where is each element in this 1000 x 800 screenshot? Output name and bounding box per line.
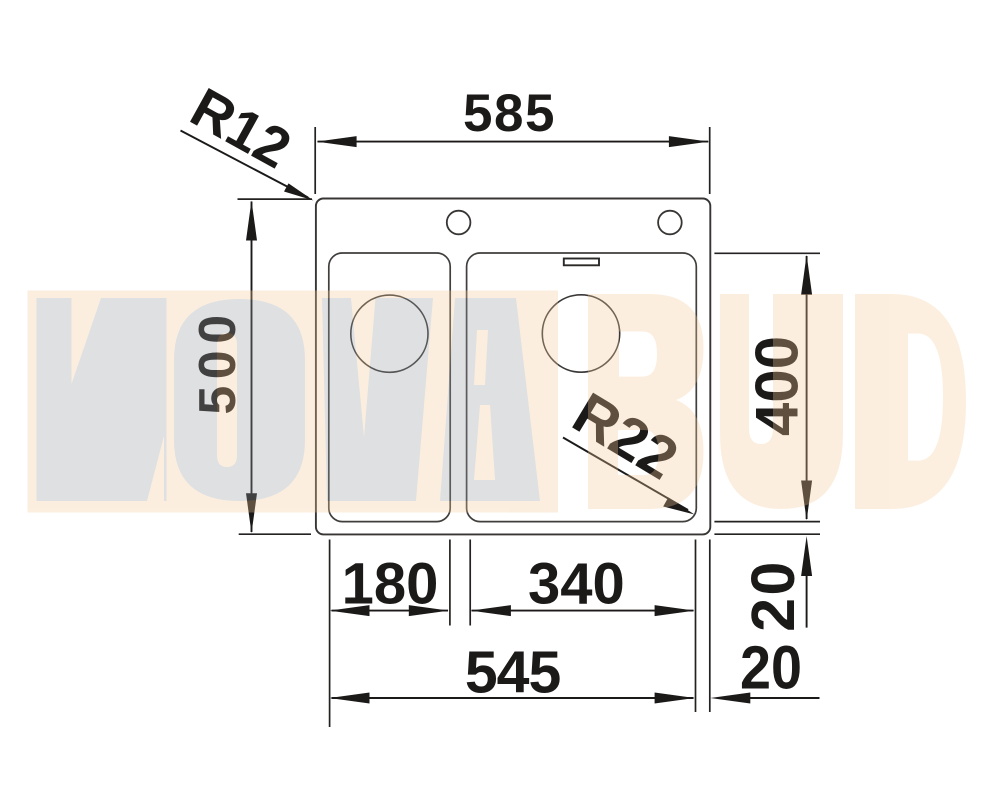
svg-text:20: 20: [739, 559, 807, 632]
svg-text:545: 545: [465, 640, 561, 706]
svg-text:340: 340: [528, 552, 625, 617]
svg-text:20: 20: [740, 634, 802, 702]
svg-text:180: 180: [342, 552, 439, 617]
svg-text:585: 585: [463, 84, 556, 143]
